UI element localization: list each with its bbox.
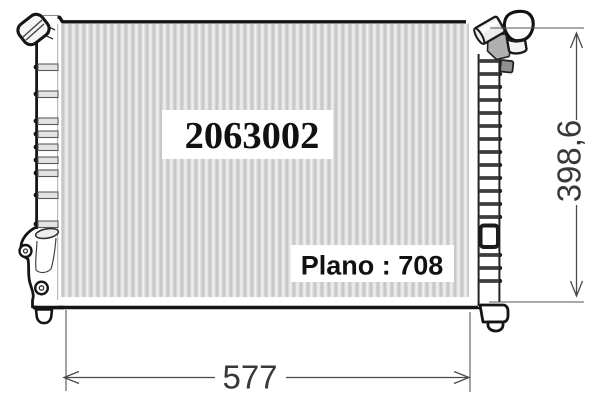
svg-text:577: 577 (222, 359, 277, 396)
svg-text:2063002: 2063002 (185, 115, 320, 157)
svg-text:398,6: 398,6 (551, 120, 588, 203)
svg-text:Plano : 708: Plano : 708 (301, 251, 444, 281)
